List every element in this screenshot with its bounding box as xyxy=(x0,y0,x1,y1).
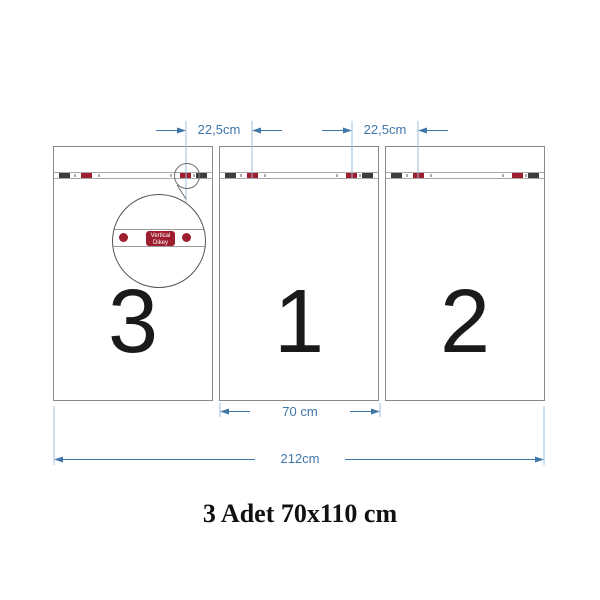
hanging-rail xyxy=(220,172,378,179)
rail-tick xyxy=(502,174,504,177)
orientation-badge-line2: Dikey xyxy=(146,240,175,246)
rail-tick xyxy=(430,174,432,177)
rail-tick xyxy=(525,174,527,177)
rail-tick xyxy=(359,174,361,177)
arrowhead-right xyxy=(343,128,352,134)
rail-tick xyxy=(336,174,338,177)
orientation-badge-line1: Vertical xyxy=(146,233,175,239)
hanger-eyelet-right xyxy=(182,233,191,242)
rail-tick xyxy=(170,174,172,177)
magnifier-source-circle xyxy=(174,163,200,189)
panel-2: 2 xyxy=(385,146,545,401)
rail-tick xyxy=(98,174,100,177)
rail-marker-dark xyxy=(528,173,539,178)
panel-number: 1 xyxy=(220,275,378,369)
spacing-dimension-right-label: 22,5cm xyxy=(352,122,418,137)
panel-width-dimension-label: 70 cm xyxy=(250,404,350,419)
rail-tick xyxy=(264,174,266,177)
total-width-dimension-label: 212cm xyxy=(255,451,345,466)
rail-marker-dark xyxy=(59,173,70,178)
rail-marker-red xyxy=(512,173,523,178)
rail-marker-dark xyxy=(225,173,236,178)
hanger-eyelet-left xyxy=(119,233,128,242)
spacing-dimension-left-label: 22,5cm xyxy=(186,122,252,137)
rail-marker-red xyxy=(413,173,424,178)
rail-tick xyxy=(240,174,242,177)
arrowhead-right xyxy=(535,457,544,463)
rail-marker-dark xyxy=(391,173,402,178)
arrowhead-right xyxy=(177,128,186,134)
rail-marker-red xyxy=(346,173,357,178)
rail-marker-red xyxy=(81,173,92,178)
panel-1: 1 xyxy=(219,146,379,401)
hanging-rail xyxy=(386,172,544,179)
panel-number: 3 xyxy=(54,275,212,369)
rail-tick xyxy=(74,174,76,177)
arrowhead-left xyxy=(54,457,63,463)
diagram-title: 3 Adet 70x110 cm xyxy=(0,499,600,529)
rail-marker-dark xyxy=(362,173,373,178)
arrowhead-left xyxy=(220,409,229,415)
arrowhead-left xyxy=(252,128,261,134)
magnifier-detail-circle: Vertical Dikey xyxy=(112,194,206,288)
rail-marker-red xyxy=(247,173,258,178)
arrowhead-right xyxy=(371,409,380,415)
panel-number: 2 xyxy=(386,275,544,369)
rail-tick xyxy=(406,174,408,177)
arrowhead-left xyxy=(418,128,427,134)
banner-layout-diagram: 3 1 2 xyxy=(0,0,600,600)
orientation-badge: Vertical Dikey xyxy=(146,231,175,246)
